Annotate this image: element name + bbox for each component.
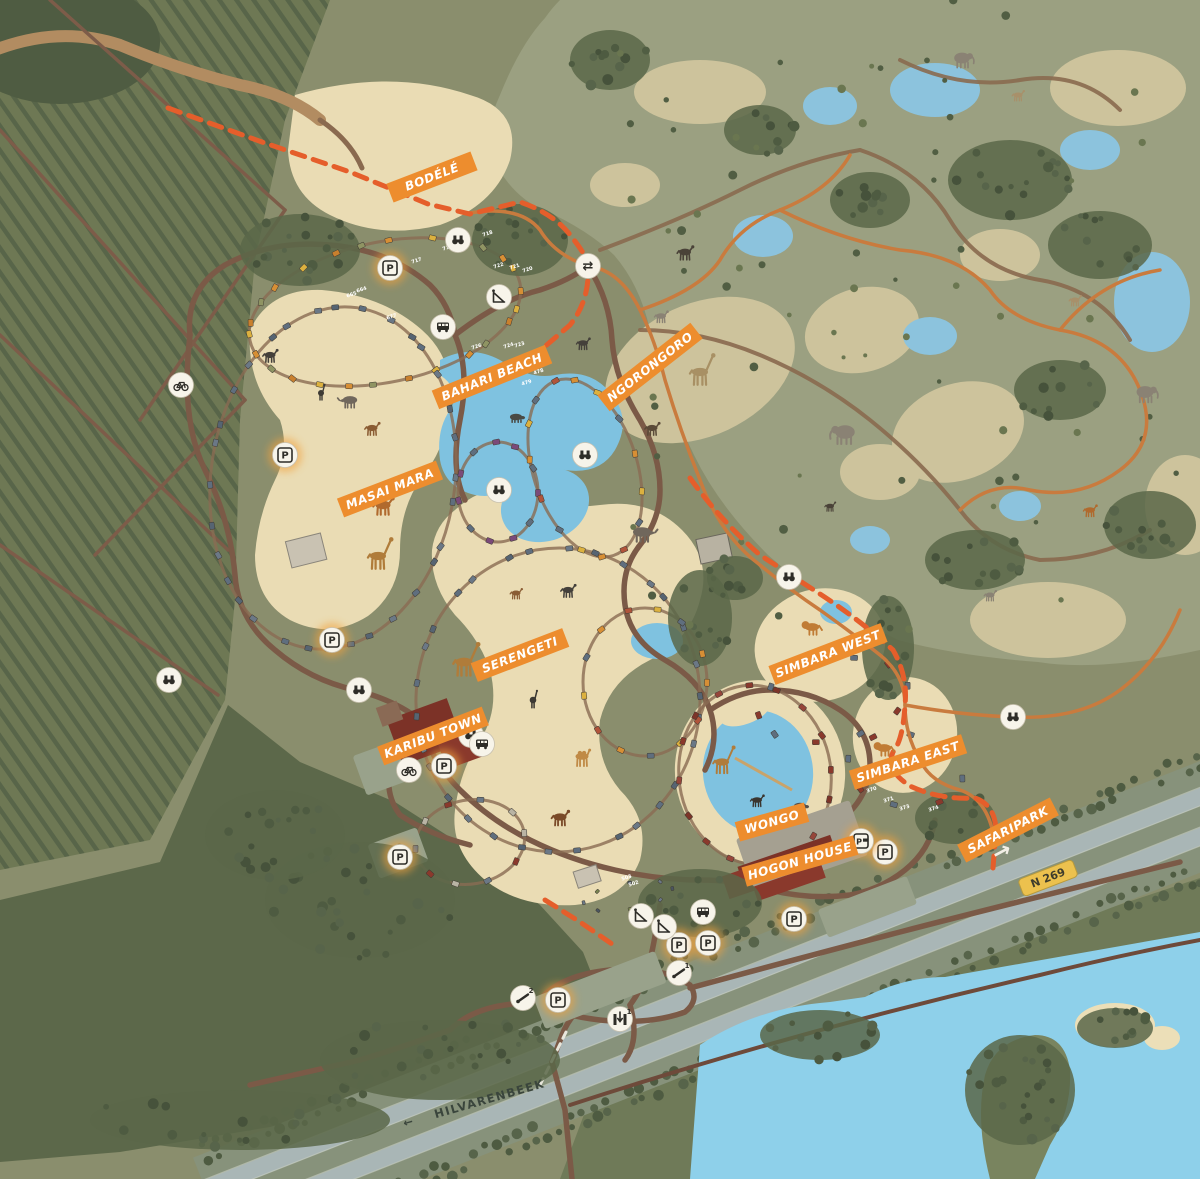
lodge xyxy=(850,655,857,660)
lodge xyxy=(625,608,633,614)
lodge xyxy=(305,645,313,651)
lodge xyxy=(828,766,833,773)
lodge xyxy=(450,498,456,506)
lodge xyxy=(581,692,587,699)
lodge xyxy=(545,849,553,855)
svg-text:P: P xyxy=(328,635,335,646)
parking-icon: P xyxy=(383,840,417,874)
svg-text:P: P xyxy=(281,450,288,461)
parking-icon: P xyxy=(777,902,811,936)
gate-icon: 2 xyxy=(511,986,536,1011)
binoculars-icon xyxy=(347,678,372,703)
lodge xyxy=(492,439,500,445)
bicycle-icon xyxy=(397,758,422,783)
bus-icon xyxy=(431,315,456,340)
lodge xyxy=(518,287,524,294)
bus-icon xyxy=(470,732,495,757)
lodge xyxy=(746,682,754,688)
svg-text:⇄: ⇄ xyxy=(583,259,594,274)
svg-text:1: 1 xyxy=(627,1008,632,1016)
parking-icon: P xyxy=(315,623,349,657)
binoculars-icon xyxy=(1001,705,1026,730)
svg-text:P: P xyxy=(856,837,862,846)
lodge xyxy=(697,692,703,700)
lodge xyxy=(209,522,215,530)
svg-text:P: P xyxy=(704,938,711,949)
gate-icon: 1 xyxy=(667,961,692,986)
svg-text:P: P xyxy=(790,914,797,925)
lodge xyxy=(314,308,322,314)
lodge xyxy=(960,775,965,782)
lodge xyxy=(647,753,654,758)
parking-icon: P xyxy=(373,251,407,285)
parking-icon: P xyxy=(691,926,725,960)
svg-text:P: P xyxy=(440,761,447,772)
lodge xyxy=(654,607,661,613)
svg-text:P: P xyxy=(881,847,888,858)
lodge xyxy=(332,305,339,311)
binoculars-icon xyxy=(777,565,802,590)
parking-icon: P xyxy=(268,438,302,472)
bus-icon xyxy=(691,900,716,925)
lodge xyxy=(812,740,819,745)
entrance-icon: 1 xyxy=(608,1007,633,1032)
svg-text:P: P xyxy=(396,852,403,863)
lodge xyxy=(671,886,674,890)
lodge xyxy=(258,298,264,306)
lodge xyxy=(846,755,851,762)
transfer-icon: ⇄ xyxy=(576,254,601,279)
binoculars-icon xyxy=(446,228,471,253)
lodge xyxy=(518,844,526,850)
bicycle-icon xyxy=(169,373,194,398)
lodge xyxy=(405,375,413,381)
parking-icon: P xyxy=(541,983,575,1017)
lodge xyxy=(582,900,586,905)
safari-resort-map[interactable]: 7167177187207217227237247264784796646656… xyxy=(0,0,1200,1179)
lodge xyxy=(632,450,638,458)
map-canvas: 7167177187207217227237247264784796646656… xyxy=(0,0,1200,1179)
svg-text:P: P xyxy=(554,995,561,1006)
lodge xyxy=(248,319,253,326)
lodge xyxy=(527,456,532,463)
lodge xyxy=(207,481,213,489)
lodge xyxy=(369,382,376,388)
lodge xyxy=(316,381,324,387)
lodge xyxy=(522,830,527,837)
playground-icon xyxy=(629,904,654,929)
lodge xyxy=(826,796,832,804)
playground-icon xyxy=(652,915,677,940)
svg-text:P: P xyxy=(675,940,682,951)
binoculars-icon xyxy=(573,443,598,468)
playground-icon xyxy=(487,285,512,310)
lodge xyxy=(566,546,573,552)
lodge xyxy=(676,777,682,785)
lodge xyxy=(477,797,484,802)
svg-text:P: P xyxy=(386,263,393,274)
lodge xyxy=(345,384,352,389)
lodge xyxy=(447,405,453,413)
lodge xyxy=(573,848,580,854)
svg-text:2: 2 xyxy=(529,987,534,995)
lodge xyxy=(217,421,223,429)
lodge xyxy=(571,377,579,383)
binoculars-icon xyxy=(487,478,512,503)
svg-text:1: 1 xyxy=(685,962,690,970)
lodge xyxy=(639,488,645,495)
lodge xyxy=(414,713,420,720)
lodge xyxy=(704,679,709,686)
binoculars-icon xyxy=(157,668,182,693)
lodge xyxy=(699,650,705,658)
parking-icon: P xyxy=(427,749,461,783)
